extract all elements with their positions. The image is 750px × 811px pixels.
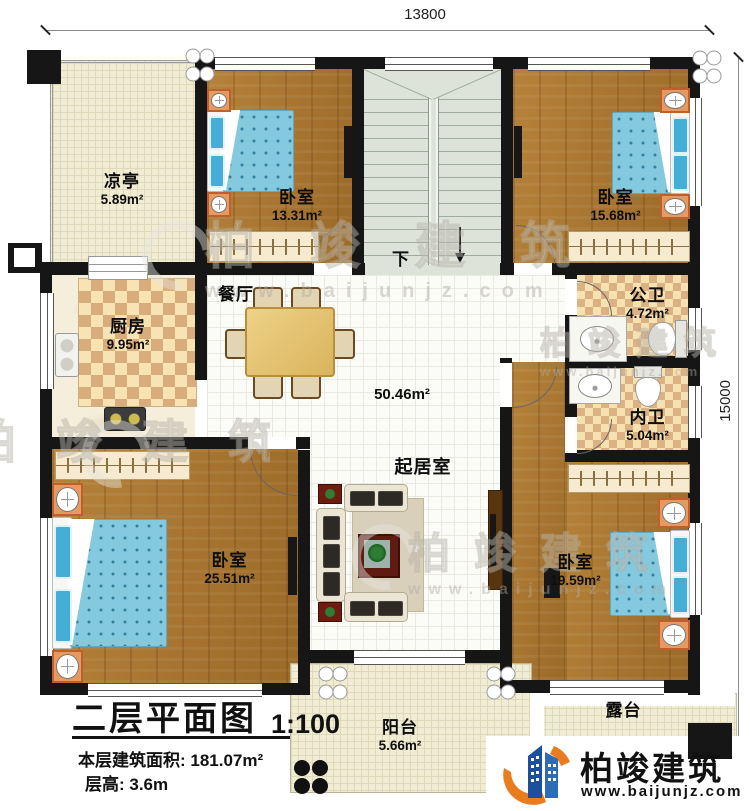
room-name: 卧室 — [172, 551, 287, 571]
stairs-landing-line-left — [364, 69, 432, 100]
pavilion-floor — [50, 60, 198, 268]
nightstand — [660, 88, 690, 113]
side-table — [318, 484, 342, 504]
wardrobe-bedroom2 — [568, 231, 690, 262]
private-bath-toilet — [632, 366, 662, 408]
toilet-bowl — [648, 322, 676, 356]
lamp-icon — [56, 654, 79, 679]
lamp-icon — [211, 196, 227, 213]
stairs: 下 — [364, 69, 501, 275]
wall-bedroom1-stairs — [352, 57, 364, 263]
sofa-cushion — [378, 601, 403, 616]
bed-bedroom3 — [52, 517, 165, 647]
tv-bedroom1 — [344, 126, 352, 178]
label-dining: 餐厅 — [200, 285, 272, 305]
wardrobe-bedroom3 — [55, 451, 190, 480]
plan-title: 二层平面图 — [72, 691, 257, 740]
stairs-arrow-head — [455, 253, 465, 263]
room-name: 阳台 — [350, 718, 450, 738]
nightstand — [658, 498, 690, 528]
wall-stairs-bedroom2 — [501, 57, 513, 263]
window-bedroom2-right — [688, 98, 702, 206]
label-living: 起居室 — [368, 457, 478, 478]
room-name: 卧室 — [518, 553, 633, 573]
room-name: 卧室 — [558, 188, 673, 208]
brand-website: www.baijunjz.com — [581, 783, 742, 800]
wall-living-bottom-a — [310, 650, 354, 663]
window-bedroom2-top — [528, 57, 650, 71]
coffee-table — [358, 534, 400, 578]
room-area: 4.72m² — [600, 306, 695, 322]
lamp-icon — [56, 487, 79, 512]
door-gap-public-bath — [565, 279, 577, 315]
label-bedroom1: 卧室 13.31m² — [242, 188, 352, 223]
dim-right-label: 15000 — [717, 380, 734, 422]
room-area: 13.31m² — [242, 208, 352, 224]
wall-bedroom4-bottom-b — [664, 680, 700, 693]
bed-pillow — [209, 154, 225, 188]
bed-pillow — [672, 154, 689, 191]
column-dots — [292, 758, 330, 796]
plant-icon — [325, 489, 335, 499]
label-bedroom4: 卧室 19.59m² — [518, 553, 633, 588]
bedroom4-corridor-floor — [512, 362, 565, 680]
brand-logo-icon — [496, 740, 576, 806]
stairs-left-flight — [364, 99, 428, 263]
lamp-icon — [662, 624, 686, 646]
sofa-cushion — [323, 516, 340, 540]
lamp-icon — [662, 502, 686, 524]
bed-pillow — [54, 589, 72, 643]
floor-plan: 下 — [0, 0, 750, 811]
stairs-down-label: 下 — [392, 245, 409, 270]
tv-living — [490, 514, 496, 566]
room-name: 起居室 — [368, 457, 478, 478]
nightstand — [207, 89, 231, 112]
bed-sheet — [646, 532, 672, 614]
room-area: 19.59m² — [518, 573, 633, 589]
floor-area-line: 本层建筑面积: 181.07m² — [78, 746, 263, 771]
room-area: 25.51m² — [172, 571, 287, 587]
sliding-door-bedroom4 — [550, 680, 664, 695]
bed-pillow — [672, 117, 689, 154]
pillar-top-left — [27, 50, 61, 84]
wardrobe-bedroom1 — [209, 231, 319, 262]
sofa-cushion — [350, 601, 375, 616]
sofa-left — [316, 508, 346, 602]
room-name: 卧室 — [242, 188, 352, 208]
bed-pillow — [209, 116, 225, 150]
room-name: 公卫 — [600, 286, 695, 306]
room-name: 凉亭 — [62, 172, 182, 192]
room-area: 5.66m² — [350, 738, 450, 754]
room-area: 5.89m² — [62, 192, 182, 208]
private-bath-sink — [578, 374, 612, 398]
sofa-bottom — [344, 592, 408, 622]
room-name: 内卫 — [600, 408, 695, 428]
wardrobe-bedroom4 — [568, 464, 690, 493]
wall-living-bottom-b — [465, 650, 512, 663]
bed-bedroom1 — [207, 110, 292, 190]
sofa-cushion — [350, 491, 375, 506]
bed-pillow — [672, 576, 689, 614]
stairs-landing-line-right — [433, 69, 501, 100]
lamp-icon — [211, 93, 227, 108]
bed-pillow — [672, 536, 689, 574]
sliding-door-balcony — [354, 650, 465, 665]
floor-height-line: 层高: 3.6m — [85, 770, 168, 795]
sofa-top — [344, 484, 408, 512]
door-gap-bedroom4 — [500, 363, 512, 407]
nightstand — [658, 620, 690, 650]
bed-bedroom2 — [612, 112, 688, 192]
window-bedroom4-right — [688, 523, 702, 615]
dim-top-line — [45, 30, 710, 31]
door-gap-bedroom3 — [248, 437, 296, 449]
plant-icon — [325, 607, 335, 617]
room-area: 50.46m² — [374, 386, 430, 403]
toilet-tank — [675, 320, 687, 358]
nightstand — [52, 483, 83, 516]
title-underline — [72, 736, 290, 739]
bed-sheet — [68, 519, 104, 645]
label-private-bath: 内卫 5.04m² — [600, 408, 695, 443]
public-bath-toilet — [648, 318, 686, 358]
sofa-cushion — [323, 572, 340, 596]
dim-right-line — [738, 58, 739, 791]
dining-table — [245, 307, 335, 377]
column-cluster — [183, 46, 217, 84]
stairs-right-flight — [437, 99, 501, 263]
side-table — [318, 602, 342, 622]
pavilion-steps — [88, 256, 148, 280]
lamp-icon — [664, 92, 686, 109]
label-public-bath: 公卫 4.72m² — [600, 286, 695, 321]
label-pavilion: 凉亭 5.89m² — [62, 172, 182, 207]
room-name: 厨房 — [68, 317, 188, 337]
label-bedroom3: 卧室 25.51m² — [172, 551, 287, 586]
room-name: 餐厅 — [200, 285, 272, 305]
public-bath-sink — [580, 326, 614, 352]
tv-bedroom3 — [288, 537, 297, 595]
door-gap-private-bath — [565, 417, 577, 453]
tv-bedroom2 — [514, 126, 522, 178]
room-name: 露台 — [586, 701, 661, 721]
room-area: 5.04m² — [600, 428, 695, 444]
column-cluster — [690, 48, 724, 86]
bed-sheet — [221, 110, 249, 190]
stairs-divider — [428, 97, 439, 265]
sofa-cushion — [378, 491, 403, 506]
bed-pillow — [54, 525, 72, 579]
stairs-arrow-stem — [459, 227, 461, 253]
plant-icon — [368, 544, 386, 562]
stove — [104, 407, 146, 431]
wall-bedroom1-left — [195, 57, 207, 280]
room-area: 9.95m² — [68, 337, 188, 353]
column-cluster — [484, 664, 518, 702]
dim-top-label: 13800 — [385, 6, 465, 23]
window-bedroom1-top — [215, 57, 315, 71]
wall-bedroom3-right — [298, 450, 310, 695]
door-gap-bedroom2 — [514, 263, 552, 275]
kitchen-flue-inner — [14, 248, 35, 267]
nightstand — [207, 192, 231, 217]
label-living-area: 50.46m² — [352, 386, 452, 403]
label-balcony: 阳台 5.66m² — [350, 718, 450, 753]
nightstand — [52, 650, 83, 683]
label-kitchen: 厨房 9.95m² — [68, 317, 188, 352]
bed-sheet — [646, 112, 672, 192]
sofa-cushion — [323, 544, 340, 568]
label-terrace: 露台 — [586, 701, 661, 721]
room-area: 15.68m² — [558, 208, 673, 224]
label-bedroom2: 卧室 15.68m² — [558, 188, 673, 223]
toilet-bowl — [635, 377, 661, 407]
door-gap-bedroom1 — [314, 263, 352, 275]
title-block: 二层平面图 1:100 — [72, 691, 340, 740]
window-kitchen-left — [40, 293, 54, 389]
